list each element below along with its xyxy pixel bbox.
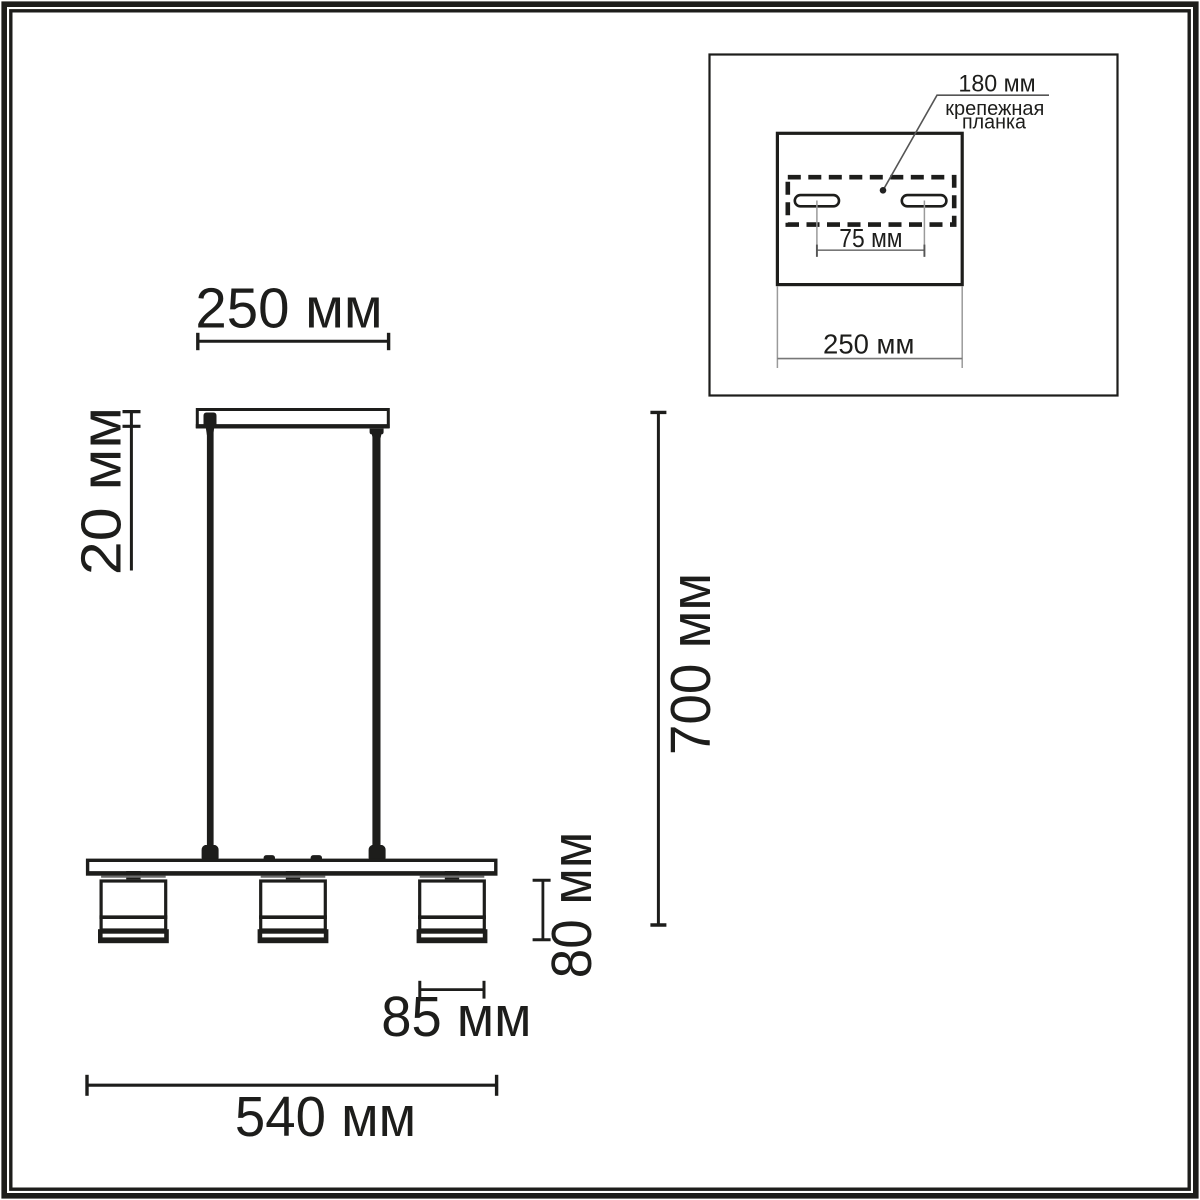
svg-text:540 мм: 540 мм xyxy=(235,1085,416,1149)
svg-text:250 мм: 250 мм xyxy=(195,277,382,341)
svg-text:75 мм: 75 мм xyxy=(839,225,902,253)
svg-text:20 мм: 20 мм xyxy=(70,407,134,575)
svg-text:80 мм: 80 мм xyxy=(540,832,604,979)
svg-text:планка: планка xyxy=(962,111,1027,134)
svg-text:250 мм: 250 мм xyxy=(823,328,914,359)
svg-text:700 мм: 700 мм xyxy=(659,573,723,755)
svg-text:85 мм: 85 мм xyxy=(381,985,531,1049)
svg-text:180 мм: 180 мм xyxy=(958,71,1035,98)
